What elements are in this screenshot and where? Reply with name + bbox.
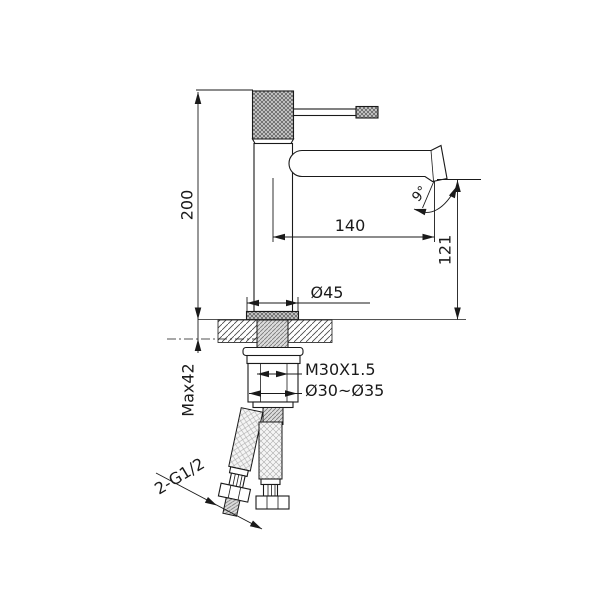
dim-max-deck-thickness: Max42 (179, 339, 202, 417)
dim-hole-diameter-label: Ø30~Ø35 (305, 381, 384, 400)
washer-collar (247, 356, 300, 364)
dim-spout-outlet-height-label: 121 (436, 235, 455, 266)
spout (289, 146, 447, 182)
lever-rod (294, 109, 357, 116)
nut-lip (253, 402, 293, 408)
dim-inlet-connections-label: 2-G1/2 (151, 454, 208, 498)
hose-braid (259, 422, 282, 479)
base-ring-knurled (247, 312, 299, 321)
hose-crimp (261, 479, 280, 485)
threaded-shank (257, 320, 288, 348)
dim-spout-outlet-height: 121 (436, 180, 482, 320)
dim-spout-reach-label: 140 (335, 216, 366, 235)
dim-overall-height-label: 200 (178, 190, 197, 221)
dim-spout-angle-label: 9° (409, 183, 431, 205)
washer (243, 348, 303, 356)
dim-spout-reach: 140 (273, 178, 435, 242)
mounting-nut (248, 364, 298, 403)
dim-max-deck-thickness-label: Max42 (179, 363, 198, 416)
supply-hose-vertical (256, 422, 289, 509)
supply-hoses (215, 407, 289, 518)
lever-grip-knurled (356, 107, 378, 119)
hose-hex-nut (256, 496, 289, 509)
handle-knurled (253, 91, 294, 139)
dim-overall-height: 200 (178, 90, 254, 353)
handle-neck (253, 139, 294, 144)
dim-base-diameter-label: Ø45 (311, 283, 344, 302)
dim-mounting-thread-label: M30X1.5 (305, 360, 376, 379)
hose-braid (229, 408, 263, 471)
faucet-body (247, 91, 448, 320)
technical-drawing: 200 Max42 Ø45 140 (0, 0, 600, 600)
